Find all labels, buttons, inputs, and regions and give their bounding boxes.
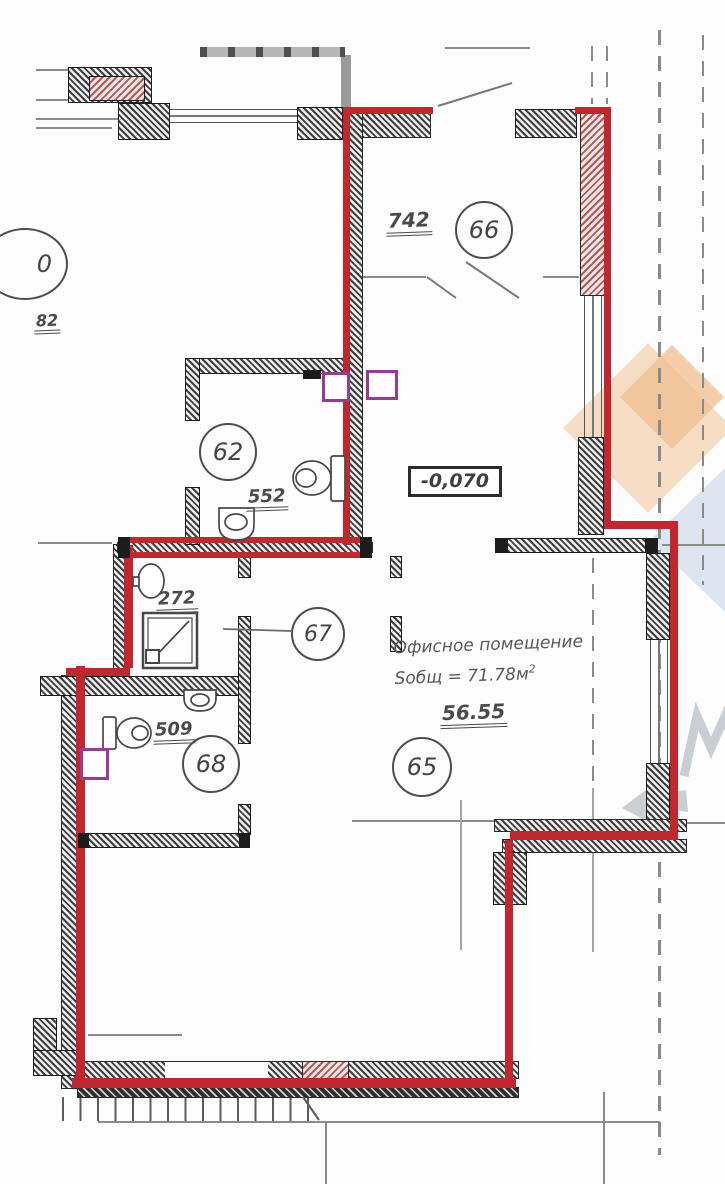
wall-connector — [341, 55, 351, 107]
unit-outline — [72, 1078, 516, 1088]
unit-outline — [76, 666, 85, 1088]
watermark-orange-inner — [620, 345, 724, 449]
watermark-letter-glyph — [684, 714, 725, 776]
area-superscript: 2 — [528, 662, 535, 675]
dim-label-742: 742 — [386, 207, 433, 237]
shower-tray-icon — [143, 613, 197, 668]
ref-line — [325, 1121, 327, 1184]
fixtures-layer — [0, 0, 725, 1184]
wall-segment — [503, 840, 686, 852]
wall-segment — [303, 1062, 348, 1078]
wall-segment — [118, 103, 170, 140]
room-number: 65 — [407, 753, 438, 781]
ref-line — [686, 822, 725, 824]
wall-cap — [239, 833, 250, 848]
wall-cap — [645, 538, 658, 553]
room-number: 66 — [469, 216, 500, 244]
grid-line — [592, 788, 594, 952]
wall-pier — [646, 763, 670, 823]
vent-shaft — [80, 748, 109, 780]
wall-segment — [62, 676, 76, 1088]
room-number: 0 — [37, 250, 52, 278]
partition — [238, 616, 251, 744]
leader-line — [223, 629, 291, 631]
toilet-icon — [293, 456, 345, 501]
wall-segment — [515, 109, 577, 138]
unit-outline — [670, 521, 678, 840]
floor-plan: 62 66 67 68 65 0 742 552 272 509 56.55 8… — [0, 0, 725, 1184]
ref-line — [88, 1034, 182, 1036]
door-swing — [427, 277, 456, 298]
dim-label-552: 552 — [246, 485, 288, 511]
hatch-ticks — [62, 1097, 320, 1121]
unit-outline — [604, 107, 611, 529]
ref-line — [98, 1121, 660, 1123]
ref-line — [38, 542, 112, 544]
watermark — [0, 0, 725, 1184]
axis-line — [592, 558, 594, 788]
ref-line — [603, 1092, 605, 1184]
room-circle-partial: 0 — [0, 228, 68, 300]
axis-line — [591, 46, 593, 104]
room-circle-65: 65 — [392, 737, 452, 797]
ref-line — [36, 118, 118, 120]
wall-stub — [303, 370, 321, 379]
wall-segment — [118, 543, 372, 552]
wall-opening — [165, 1062, 268, 1078]
unit-outline — [510, 831, 678, 840]
wall-segment — [114, 545, 124, 668]
wall-segment — [297, 107, 343, 140]
ref-line — [36, 99, 68, 101]
unit-outline — [118, 537, 372, 543]
room-circle-68: 68 — [182, 735, 240, 793]
door-swing — [438, 83, 512, 106]
door-jamb-line — [362, 276, 426, 278]
wall-cap — [495, 538, 508, 553]
unit-outline — [604, 521, 672, 529]
wall-pier — [646, 553, 670, 640]
window — [650, 640, 668, 763]
axis-line — [606, 46, 608, 104]
wall-cap — [118, 537, 130, 558]
ref-line — [36, 69, 68, 71]
partition — [238, 804, 251, 835]
wall-segment — [352, 114, 430, 137]
vent-shaft — [366, 370, 398, 400]
wall-pier — [578, 437, 604, 535]
toilet-icon — [103, 717, 151, 749]
ref-line — [352, 820, 497, 822]
ref-line — [36, 127, 112, 129]
dim-label-272: 272 — [156, 587, 198, 613]
partition — [238, 555, 251, 578]
room-number: 67 — [304, 622, 332, 647]
wall-segment — [497, 538, 658, 553]
column — [90, 77, 144, 100]
grid-line — [460, 800, 462, 950]
upper-unit-wall — [200, 47, 345, 57]
wall-stub — [238, 517, 250, 537]
room-circle-67: 67 — [291, 607, 345, 661]
partition-stub — [390, 556, 402, 578]
vent-shaft — [322, 372, 350, 402]
entry-wall — [40, 676, 248, 696]
wall-segment — [78, 1062, 518, 1078]
window — [584, 295, 602, 437]
room-number: 68 — [196, 750, 227, 778]
unit-outline — [505, 840, 513, 1086]
room-circle-62: 62 — [199, 423, 257, 481]
unit-area-label: Sобщ = 71.78м2 — [394, 655, 585, 692]
wall-segment — [581, 114, 604, 295]
ref-line — [445, 47, 530, 49]
elevation-mark: -0,070 — [408, 466, 502, 497]
door-swing — [466, 262, 519, 298]
door-jamb-line — [543, 276, 579, 278]
wall-segment — [495, 820, 686, 831]
room68-bottom-wall — [78, 833, 250, 848]
dim-label-5655: 56.55 — [440, 699, 508, 729]
dim-label-509: 509 — [153, 718, 195, 744]
window — [170, 109, 297, 123]
wall-segment — [350, 114, 362, 545]
room-circle-66: 66 — [455, 201, 513, 259]
unit-outline — [66, 668, 130, 676]
unit-outline — [118, 552, 372, 558]
wall-segment — [78, 1088, 518, 1097]
unit-outline — [124, 545, 133, 668]
unit-description: Офисное помещение Sобщ = 71.78м2 — [393, 629, 584, 692]
unit-outline — [343, 107, 433, 114]
wall-cap — [78, 833, 89, 848]
wall-segment — [33, 1050, 79, 1076]
unit-outline — [343, 107, 350, 545]
wall-cap — [360, 537, 372, 558]
axis-line — [702, 35, 704, 585]
room62-left-wall — [185, 358, 200, 421]
dim-label-82: 82 — [34, 311, 61, 335]
room-number: 62 — [213, 438, 244, 466]
